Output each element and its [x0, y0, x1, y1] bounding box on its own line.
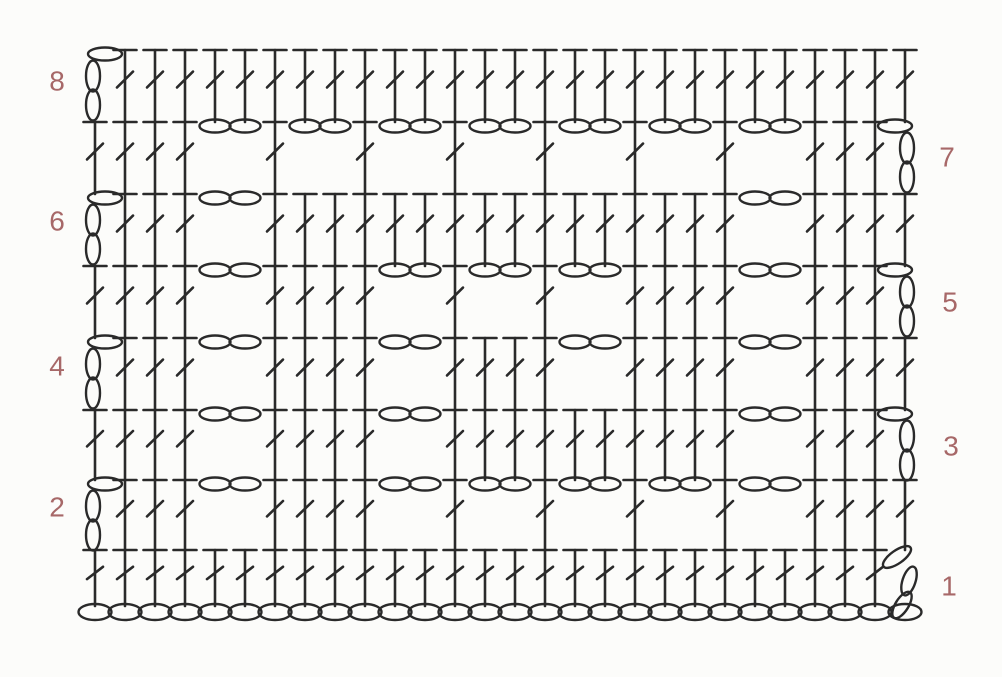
- chain-oval: [230, 408, 261, 421]
- row-label-1: 1: [941, 570, 957, 601]
- chain-oval: [770, 264, 801, 277]
- chain-oval: [900, 277, 914, 308]
- row-5: [84, 264, 915, 339]
- chain-oval: [410, 478, 441, 491]
- chain-oval: [86, 90, 100, 121]
- foundation-chain: [79, 604, 922, 620]
- row-label-2: 2: [49, 491, 65, 522]
- chain-oval: [380, 478, 411, 491]
- row-label-3: 3: [943, 430, 959, 461]
- row-4: [86, 336, 917, 411]
- row-3: [84, 408, 915, 481]
- chain-oval: [86, 234, 100, 265]
- chain-oval: [740, 264, 771, 277]
- chain-oval: [200, 336, 231, 349]
- chain-oval: [740, 478, 771, 491]
- turning-chain: [878, 408, 914, 481]
- chain-oval: [200, 478, 231, 491]
- chain-oval: [200, 408, 231, 421]
- row-7: [84, 120, 915, 195]
- chain-oval: [740, 408, 771, 421]
- chain-oval: [230, 478, 261, 491]
- chain-oval: [230, 192, 261, 205]
- chain-oval: [740, 336, 771, 349]
- chain-oval: [380, 408, 411, 421]
- turning-chain: [86, 48, 122, 121]
- chain-oval: [86, 61, 100, 92]
- chain-oval: [200, 264, 231, 277]
- chain-oval: [590, 336, 621, 349]
- chain-oval: [200, 192, 231, 205]
- chain-oval: [900, 450, 914, 481]
- chain-oval: [86, 520, 100, 551]
- turning-chain: [880, 542, 920, 621]
- row-2: [86, 478, 917, 551]
- row-label-5: 5: [942, 286, 958, 317]
- turning-chain: [86, 478, 122, 551]
- chain-oval: [230, 336, 261, 349]
- chain-oval: [560, 336, 591, 349]
- chain-oval: [770, 408, 801, 421]
- chain-oval: [740, 192, 771, 205]
- row-6: [86, 192, 917, 267]
- chain-oval: [380, 336, 411, 349]
- chain-oval: [900, 162, 914, 193]
- row-label-6: 6: [49, 205, 65, 236]
- chain-oval: [770, 478, 801, 491]
- chain-oval: [770, 192, 801, 205]
- turning-chain: [86, 192, 122, 265]
- row-label-8: 8: [49, 65, 65, 96]
- turning-chain: [878, 120, 914, 193]
- chain-oval: [230, 264, 261, 277]
- chain-oval: [878, 408, 912, 421]
- chain-oval: [86, 378, 100, 409]
- crochet-chart-page: 12345678: [0, 0, 1002, 677]
- crochet-chart-svg: 12345678: [0, 0, 1002, 677]
- chain-oval: [900, 421, 914, 452]
- chain-oval: [86, 349, 100, 380]
- chain-oval: [900, 306, 914, 337]
- chain-oval: [770, 336, 801, 349]
- chain-oval: [86, 491, 100, 522]
- row-8: [86, 48, 917, 123]
- row-label-7: 7: [939, 141, 955, 172]
- chain-oval: [410, 408, 441, 421]
- chain-oval: [86, 205, 100, 236]
- chain-oval: [878, 264, 912, 277]
- row-label-4: 4: [49, 350, 65, 381]
- turning-chain: [86, 336, 122, 409]
- turning-chain: [878, 264, 914, 337]
- chain-oval: [410, 336, 441, 349]
- chain-oval: [878, 120, 912, 133]
- chain-oval: [900, 133, 914, 164]
